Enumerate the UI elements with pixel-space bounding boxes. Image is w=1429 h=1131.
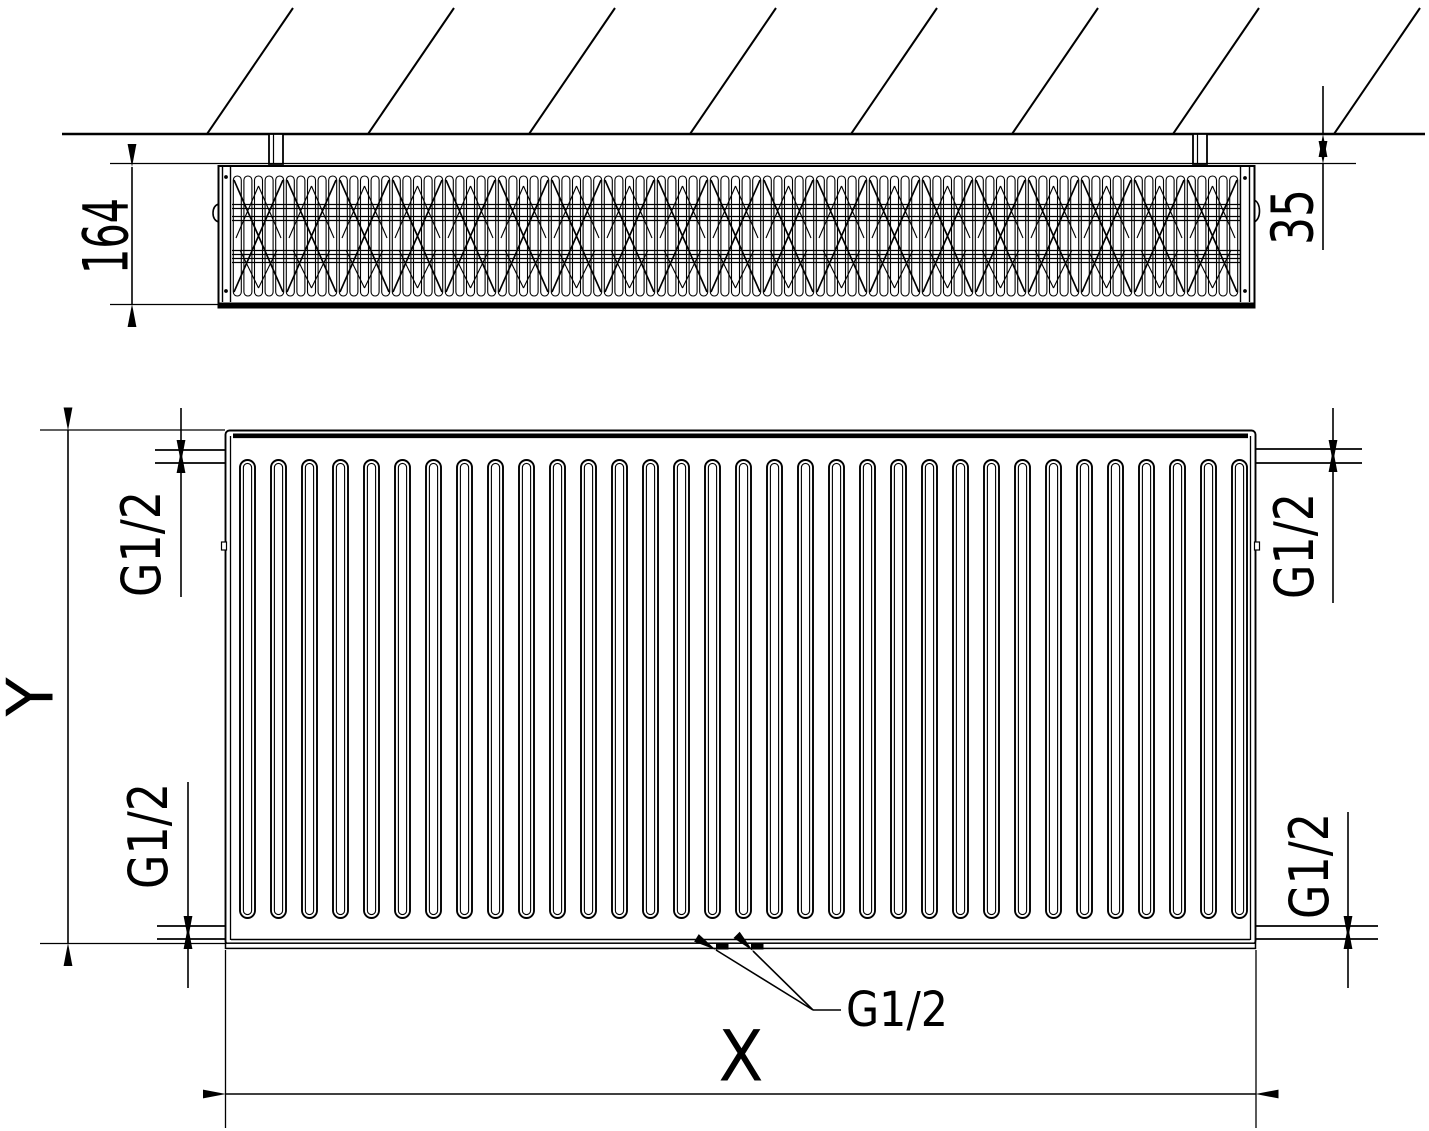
thread-label-top-right: G1/2: [1263, 493, 1326, 599]
thread-label-bottom-right: G1/2: [1278, 813, 1341, 919]
bottom-port-mark-left: [716, 944, 729, 950]
hatch-line: [851, 8, 937, 134]
dim-wall-clearance: 35: [1258, 86, 1368, 250]
hatch-line: [207, 8, 293, 134]
front-panel-bottom-skirt: [226, 943, 1256, 948]
front-face-band: [219, 303, 1254, 309]
dim-length: X: [226, 950, 1257, 1128]
side-plug-left: [222, 542, 227, 550]
dim-depth-label: 164: [70, 198, 143, 274]
connection-stub-bottom-left: [157, 926, 226, 939]
connection-stub-bottom-right: [1256, 926, 1378, 939]
radiator-front-panel: [222, 431, 1260, 950]
dim-wall-clearance-label: 35: [1258, 189, 1326, 245]
dim-thread-top-right: G1/2: [1263, 408, 1333, 603]
thread-label-bottom-center: G1/2: [846, 982, 948, 1038]
dim-thread-top-left: G1/2: [110, 408, 181, 597]
dim-height-label: Y: [0, 677, 68, 718]
thread-label-bottom-left: G1/2: [117, 783, 180, 889]
dim-length-label: X: [719, 1016, 764, 1098]
bottom-port-mark-right: [751, 944, 764, 950]
side-plug-right: [1255, 542, 1260, 550]
wall-bracket-left: [269, 134, 283, 164]
hatch-line: [690, 8, 776, 134]
dim-depth: 164: [70, 167, 218, 305]
top-view: 164 35: [62, 8, 1425, 308]
wall-bracket-right: [1193, 134, 1207, 164]
connection-stub-top-right: [1256, 449, 1362, 463]
radiator-top-view-body: [213, 166, 1260, 308]
dim-thread-bottom-left: G1/2: [117, 782, 188, 988]
leader-arrow: [716, 950, 813, 1010]
thread-label-top-left: G1/2: [110, 491, 173, 597]
front-view: G1/2 G1/2 G1/2 G1/2 G1/2: [0, 408, 1378, 1128]
hatch-line: [368, 8, 454, 134]
panel-channels: [239, 458, 1248, 920]
hatch-line: [529, 8, 615, 134]
convector-fins: [232, 172, 1240, 300]
hatch-line: [1334, 8, 1420, 134]
connection-stub-top-left: [155, 450, 226, 463]
hatch-line: [1173, 8, 1259, 134]
wall-hatching: [207, 8, 1420, 134]
hatch-line: [1012, 8, 1098, 134]
drawing-sheet: 164 35: [0, 0, 1429, 1131]
leader-arrow: [753, 951, 813, 1010]
dim-thread-bottom-right: G1/2: [1278, 812, 1348, 988]
radiator-technical-drawing: 164 35: [0, 0, 1429, 1131]
